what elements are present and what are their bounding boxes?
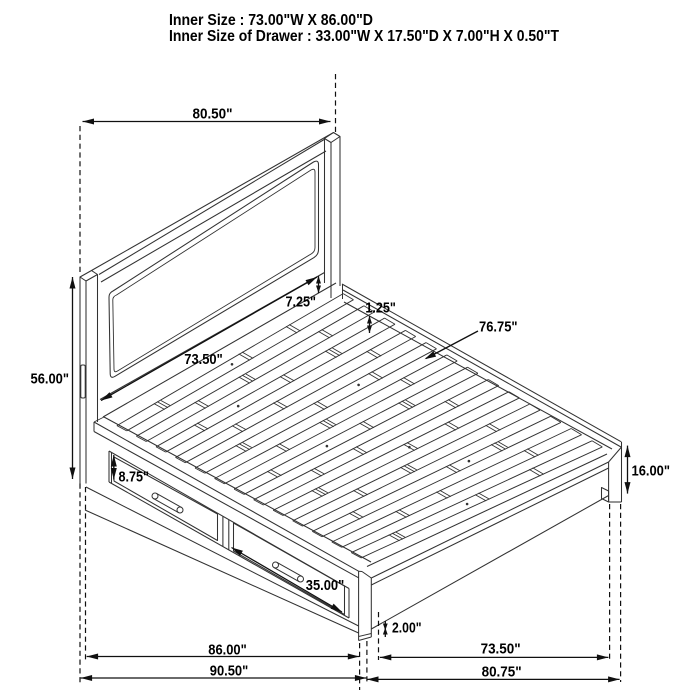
svg-text:56.00": 56.00" xyxy=(31,371,70,388)
svg-text:Inner Size : 73.00"W X 86.00"D: Inner Size : 73.00"W X 86.00"D xyxy=(169,12,373,29)
svg-text:35.00": 35.00" xyxy=(306,577,345,594)
svg-text:2.00": 2.00" xyxy=(392,620,422,637)
svg-text:Inner Size of Drawer : 33.00"W: Inner Size of Drawer : 33.00"W X 17.50"D… xyxy=(169,28,559,45)
svg-text:7.25": 7.25" xyxy=(286,294,317,311)
svg-text:73.50": 73.50" xyxy=(481,641,521,658)
svg-text:76.75": 76.75" xyxy=(479,319,518,336)
svg-text:1.25": 1.25" xyxy=(365,300,396,317)
svg-text:90.50": 90.50" xyxy=(210,663,249,680)
svg-text:8.75": 8.75" xyxy=(119,469,150,486)
svg-text:80.50": 80.50" xyxy=(193,106,233,123)
svg-text:86.00": 86.00" xyxy=(208,642,247,659)
svg-text:80.75": 80.75" xyxy=(482,664,522,681)
svg-text:16.00": 16.00" xyxy=(632,463,671,480)
svg-text:73.50": 73.50" xyxy=(184,351,223,368)
